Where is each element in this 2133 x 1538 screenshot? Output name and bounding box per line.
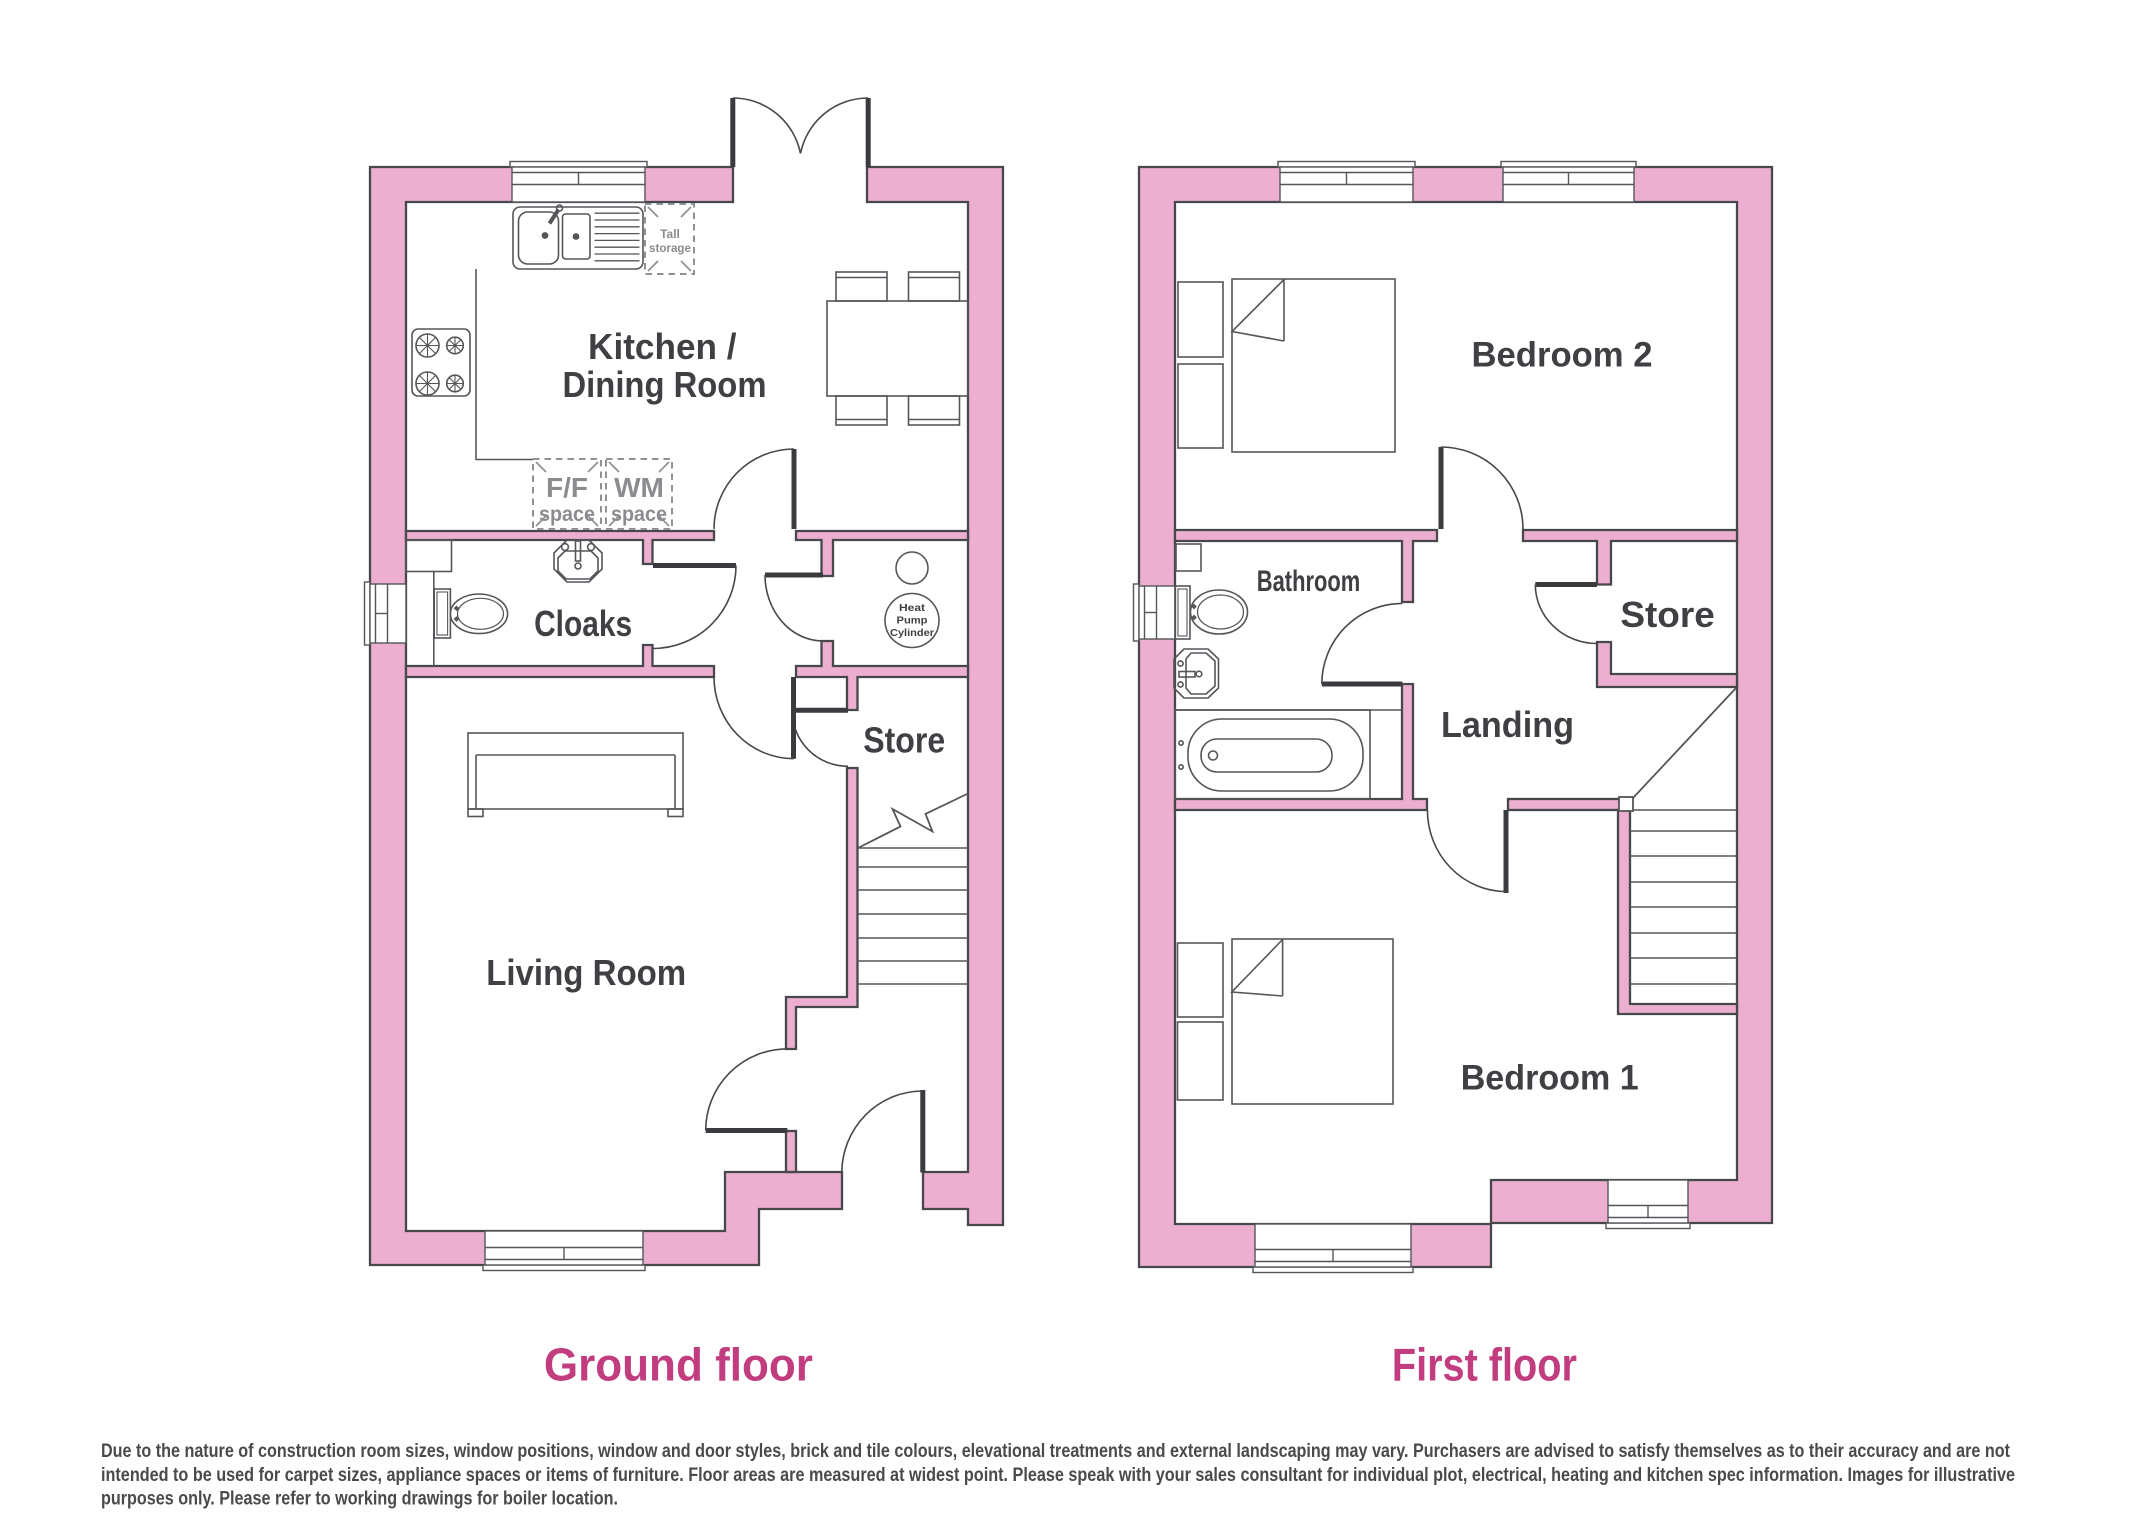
svg-text:Living Room: Living Room bbox=[486, 952, 686, 993]
svg-text:WM: WM bbox=[614, 472, 664, 503]
svg-text:Ground floor: Ground floor bbox=[544, 1339, 813, 1391]
svg-text:F/F: F/F bbox=[546, 472, 588, 503]
svg-text:Heat: Heat bbox=[899, 602, 926, 614]
svg-text:Cylinder: Cylinder bbox=[890, 627, 934, 639]
svg-text:Tall: Tall bbox=[660, 227, 680, 241]
svg-text:Kitchen /: Kitchen / bbox=[588, 326, 737, 367]
svg-text:Dining Room: Dining Room bbox=[563, 364, 767, 405]
svg-text:Store: Store bbox=[863, 720, 945, 761]
svg-text:space: space bbox=[539, 503, 595, 526]
svg-text:Cloaks: Cloaks bbox=[534, 603, 632, 644]
svg-text:Store: Store bbox=[1620, 594, 1715, 635]
svg-text:intended to be used for carpet: intended to be used for carpet sizes, ap… bbox=[101, 1465, 2015, 1486]
svg-text:First floor: First floor bbox=[1392, 1339, 1577, 1391]
svg-text:storage: storage bbox=[649, 241, 691, 255]
svg-text:Bedroom 1: Bedroom 1 bbox=[1461, 1058, 1639, 1097]
svg-text:purposes only. Please refer to: purposes only. Please refer to working d… bbox=[101, 1488, 618, 1509]
svg-text:Landing: Landing bbox=[1441, 704, 1574, 745]
svg-text:Pump: Pump bbox=[897, 615, 928, 627]
svg-text:Due to the nature of construct: Due to the nature of construction room s… bbox=[101, 1441, 2011, 1462]
svg-text:space: space bbox=[611, 503, 667, 526]
svg-text:Bedroom 2: Bedroom 2 bbox=[1472, 335, 1653, 374]
svg-text:Bathroom: Bathroom bbox=[1257, 565, 1361, 598]
